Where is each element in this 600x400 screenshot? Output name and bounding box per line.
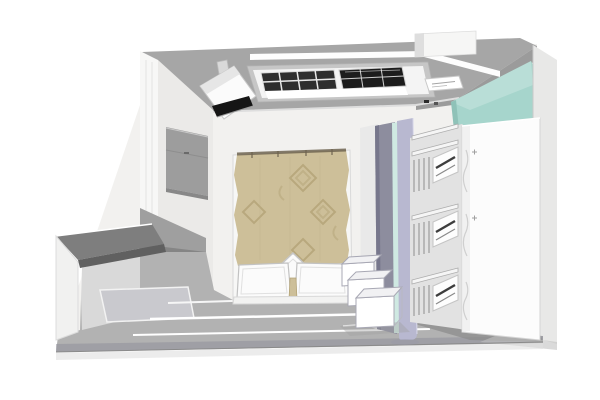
cabinet-handle [184, 152, 189, 154]
bed [233, 149, 352, 304]
bed-foot-band [233, 296, 352, 304]
floor-rug [100, 287, 194, 322]
partition-foot-shadow [391, 339, 419, 345]
ceiling-duct-box [415, 31, 476, 57]
render-viewport [0, 0, 600, 400]
vent-grille-left [261, 70, 337, 92]
vent-grille-right [339, 67, 406, 89]
bedroom-3d-render [0, 0, 600, 400]
vent-label-slot [425, 76, 463, 91]
wall-cabinet [166, 127, 208, 200]
wardrobe-front-panel [462, 118, 540, 340]
wardrobe [410, 118, 540, 340]
